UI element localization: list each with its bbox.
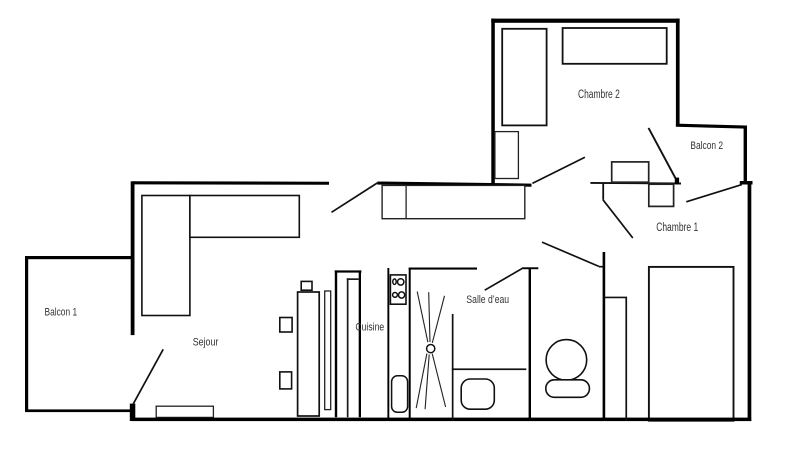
svg-text:Balcon 1: Balcon 1: [45, 307, 78, 319]
svg-text:Balcon 2: Balcon 2: [690, 140, 723, 152]
svg-text:Chambre 1: Chambre 1: [656, 222, 698, 234]
svg-text:Sejour: Sejour: [193, 336, 219, 348]
svg-text:Cuisine: Cuisine: [355, 321, 384, 333]
svg-text:Salle d’eau: Salle d’eau: [466, 294, 509, 306]
svg-text:Chambre 2: Chambre 2: [578, 89, 620, 101]
